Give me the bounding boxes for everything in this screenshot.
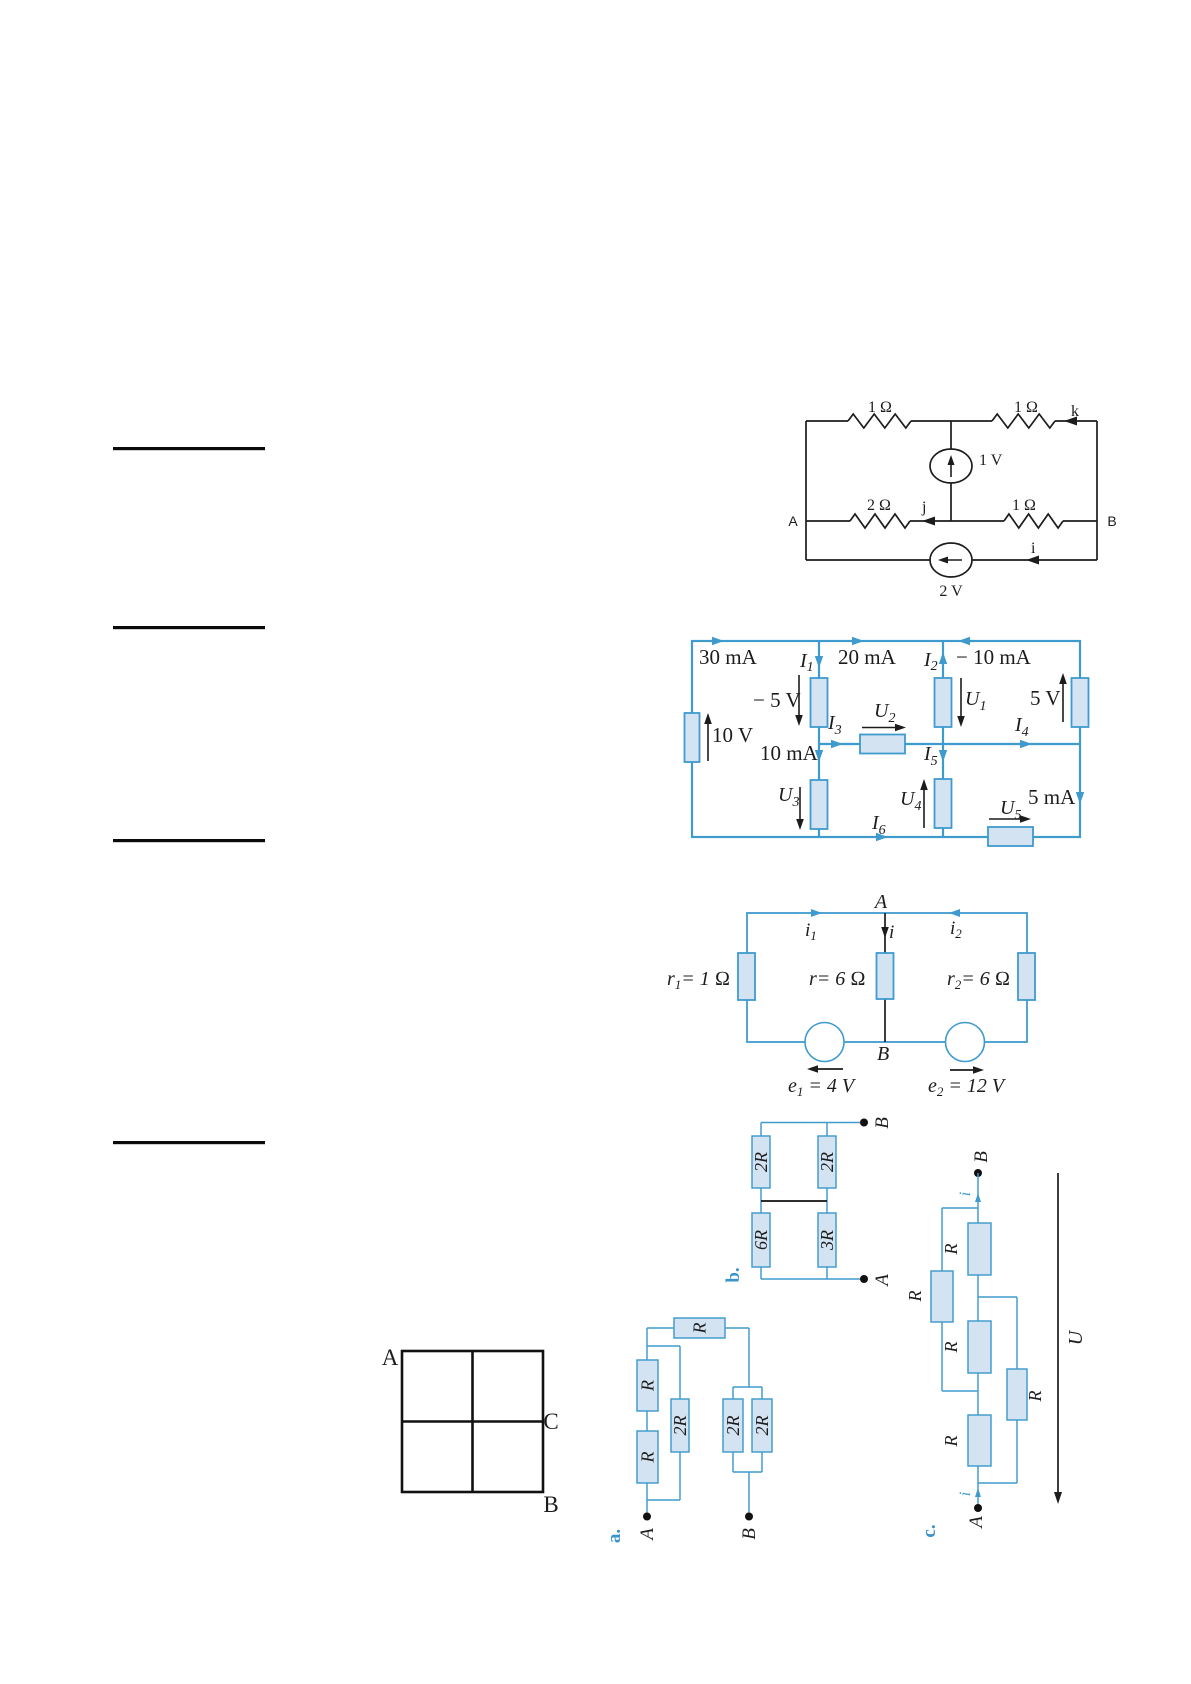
svg-text:A: A [788,513,798,529]
svg-text:2R: 2R [670,1416,690,1436]
svg-text:B: B [872,1117,893,1129]
svg-text:B: B [543,1492,558,1517]
svg-text:5 V: 5 V [1030,686,1061,710]
svg-text:e2 = 12 V: e2 = 12 V [928,1075,1007,1099]
svg-text:2R: 2R [751,1152,771,1172]
svg-text:2R: 2R [817,1152,837,1172]
svg-text:i2: i2 [950,918,962,941]
svg-text:A: A [873,891,888,913]
svg-text:k: k [1071,403,1079,420]
svg-text:R: R [941,1436,961,1448]
svg-text:A: A [637,1528,658,1542]
svg-text:20 mA: 20 mA [838,645,897,669]
svg-text:B: B [1107,513,1116,529]
svg-text:10 V: 10 V [712,723,753,747]
svg-text:B: B [971,1151,992,1163]
svg-text:5 mA: 5 mA [1028,785,1076,809]
svg-text:U1: U1 [965,688,986,714]
svg-text:A: A [966,1516,987,1530]
svg-text:A: A [872,1274,893,1288]
svg-text:I2: I2 [923,649,938,674]
svg-text:10 mA: 10 mA [760,741,819,765]
svg-text:b.: b. [723,1267,744,1282]
svg-text:1 Ω: 1 Ω [868,399,892,416]
svg-text:1 Ω: 1 Ω [1012,497,1036,514]
svg-text:r= 6 Ω: r= 6 Ω [809,968,866,990]
svg-text:U4: U4 [900,788,921,814]
svg-text:2R: 2R [752,1416,772,1436]
svg-text:U3: U3 [778,784,799,810]
svg-text:C: C [543,1409,558,1434]
svg-text:c.: c. [919,1524,940,1537]
svg-text:3R: 3R [817,1230,837,1251]
svg-text:e1 = 4 V: e1 = 4 V [788,1075,857,1099]
svg-text:A: A [382,1345,399,1370]
svg-text:I6: I6 [871,812,886,838]
svg-text:1 Ω: 1 Ω [1014,399,1038,416]
svg-text:i1: i1 [805,920,817,943]
svg-text:i: i [957,1492,974,1496]
svg-text:2R: 2R [723,1416,743,1436]
svg-text:I3: I3 [827,712,842,738]
svg-text:r1= 1 Ω: r1= 1 Ω [667,968,730,992]
svg-text:− 5 V: − 5 V [753,688,801,712]
svg-text:1 V: 1 V [979,452,1003,469]
svg-text:2 V: 2 V [939,583,963,600]
svg-text:R: R [905,1291,925,1303]
svg-text:U2: U2 [874,700,895,726]
svg-text:R: R [638,1452,658,1464]
svg-text:i: i [1031,540,1036,557]
svg-text:R: R [638,1380,658,1392]
svg-text:R: R [1025,1391,1045,1403]
svg-text:I5: I5 [923,743,938,769]
svg-text:B: B [877,1043,889,1065]
svg-text:2 Ω: 2 Ω [867,497,891,514]
svg-text:I1: I1 [799,650,814,675]
svg-text:U: U [1065,1329,1087,1345]
svg-text:− 10 mA: − 10 mA [956,645,1032,669]
svg-text:B: B [739,1528,760,1540]
svg-text:30 mA: 30 mA [699,645,758,669]
svg-text:6R: 6R [751,1230,771,1250]
svg-text:R: R [941,1342,961,1354]
svg-text:a.: a. [604,1529,625,1543]
svg-text:R: R [941,1244,961,1256]
svg-text:R: R [690,1323,710,1335]
svg-text:i: i [889,922,894,943]
svg-text:I4: I4 [1014,714,1029,740]
svg-text:r2= 6 Ω: r2= 6 Ω [947,968,1010,992]
svg-text:i: i [957,1192,974,1196]
svg-text:j: j [921,499,926,516]
